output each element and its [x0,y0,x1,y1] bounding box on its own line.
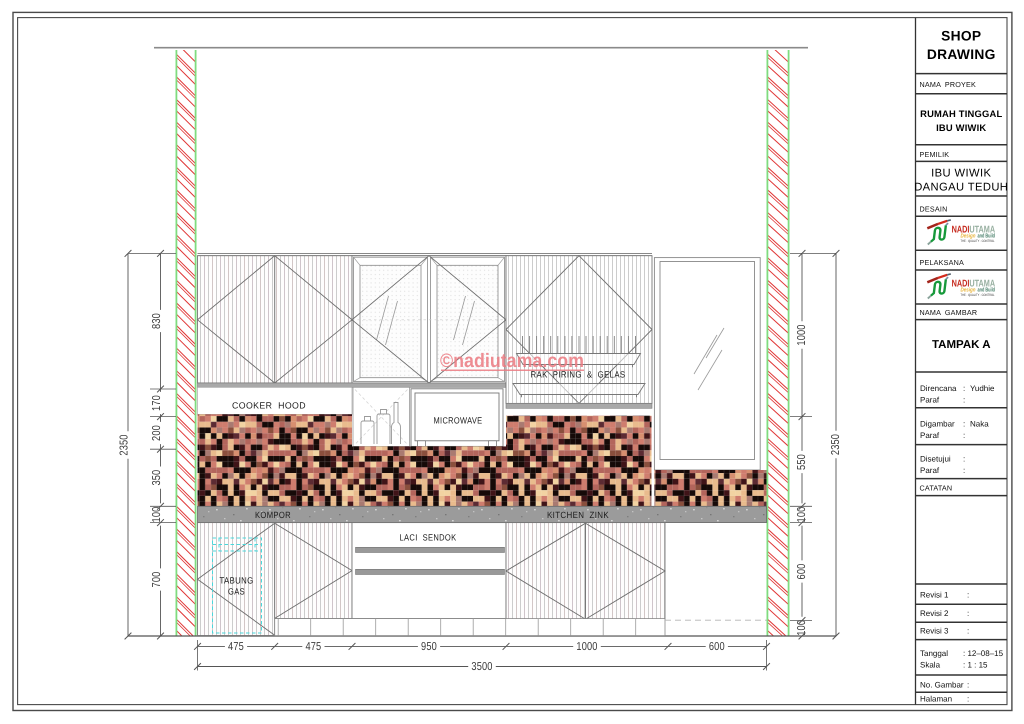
svg-text:Revisi 3: Revisi 3 [920,627,949,636]
svg-text:MICROWAVE: MICROWAVE [434,416,483,426]
svg-text:RUMAH TINGGAL: RUMAH TINGGAL [920,108,1002,119]
svg-text:Disetujui: Disetujui [920,455,951,464]
svg-text:Paraf: Paraf [920,396,940,405]
svg-text:DRAWING: DRAWING [927,47,996,62]
svg-text:SHOP: SHOP [941,29,981,44]
svg-text:IBU WIWIK: IBU WIWIK [931,168,991,180]
svg-text::: : [963,431,965,440]
svg-text::: : [963,396,965,405]
svg-text:KOMPOR: KOMPOR [255,510,291,520]
svg-text::: : [967,681,969,690]
svg-text:: 12–08–15: : 12–08–15 [963,649,1004,658]
svg-text:No. Gambar: No. Gambar [920,681,964,690]
svg-text:950: 950 [421,641,437,653]
svg-text:NAMA PROYEK: NAMA PROYEK [920,80,977,89]
svg-text:Yudhie: Yudhie [970,384,995,393]
svg-text:PELAKSANA: PELAKSANA [920,258,965,267]
svg-text:Digambar: Digambar [920,420,955,429]
svg-text:2350: 2350 [830,434,842,455]
svg-text:GAS: GAS [228,587,245,597]
svg-text:475: 475 [305,641,321,653]
svg-text:200: 200 [151,425,163,441]
svg-text:Halaman: Halaman [920,695,952,704]
svg-text::: : [963,466,965,475]
svg-text:1000: 1000 [796,324,808,345]
svg-text:Revisi 1: Revisi 1 [920,591,949,600]
svg-text:830: 830 [151,313,163,329]
svg-text:Tanggal: Tanggal [920,649,948,658]
svg-text:350: 350 [151,470,163,486]
svg-text:CATATAN: CATATAN [920,484,953,493]
svg-text:700: 700 [151,572,163,588]
svg-text::: : [967,591,969,600]
svg-text:Paraf: Paraf [920,431,940,440]
svg-text::: : [967,627,969,636]
svg-text:2350: 2350 [119,434,131,455]
svg-text:NAMA GAMBAR: NAMA GAMBAR [920,308,978,317]
svg-text:Revisi 2: Revisi 2 [920,609,949,618]
svg-text:1000: 1000 [576,641,597,653]
svg-text:Skala: Skala [920,661,941,670]
svg-text:475: 475 [228,641,244,653]
svg-text:DANGAU TEDUH: DANGAU TEDUH [914,182,1008,194]
svg-text:COOKER HOOD: COOKER HOOD [232,401,306,411]
svg-text:170: 170 [151,395,163,411]
svg-text::: : [967,609,969,618]
svg-text::: : [963,455,965,464]
svg-text:Naka: Naka [970,420,989,429]
svg-text::: : [963,420,965,429]
svg-text:PEMILIK: PEMILIK [920,150,950,159]
svg-text:100: 100 [796,620,808,636]
svg-text::: : [967,695,969,704]
svg-text:600: 600 [796,564,808,580]
svg-text:IBU WIWIK: IBU WIWIK [936,122,986,133]
svg-text:LACI SENDOK: LACI SENDOK [400,533,457,543]
svg-text:600: 600 [709,641,725,653]
svg-text:©nadiutama.com: ©nadiutama.com [440,350,584,372]
svg-text:DESAIN: DESAIN [920,205,948,214]
svg-text:100: 100 [796,507,808,523]
svg-text:KITCHEN ZINK: KITCHEN ZINK [547,510,609,520]
svg-text:: 1 : 15: : 1 : 15 [963,661,988,670]
svg-text::: : [963,384,965,393]
svg-text:Direncana: Direncana [920,384,957,393]
svg-text:TABUNG: TABUNG [220,576,254,586]
svg-text:TAMPAK A: TAMPAK A [932,339,991,351]
svg-text:550: 550 [796,454,808,470]
svg-text:Paraf: Paraf [920,466,940,475]
svg-text:3500: 3500 [471,661,492,673]
svg-text:100: 100 [151,507,163,523]
